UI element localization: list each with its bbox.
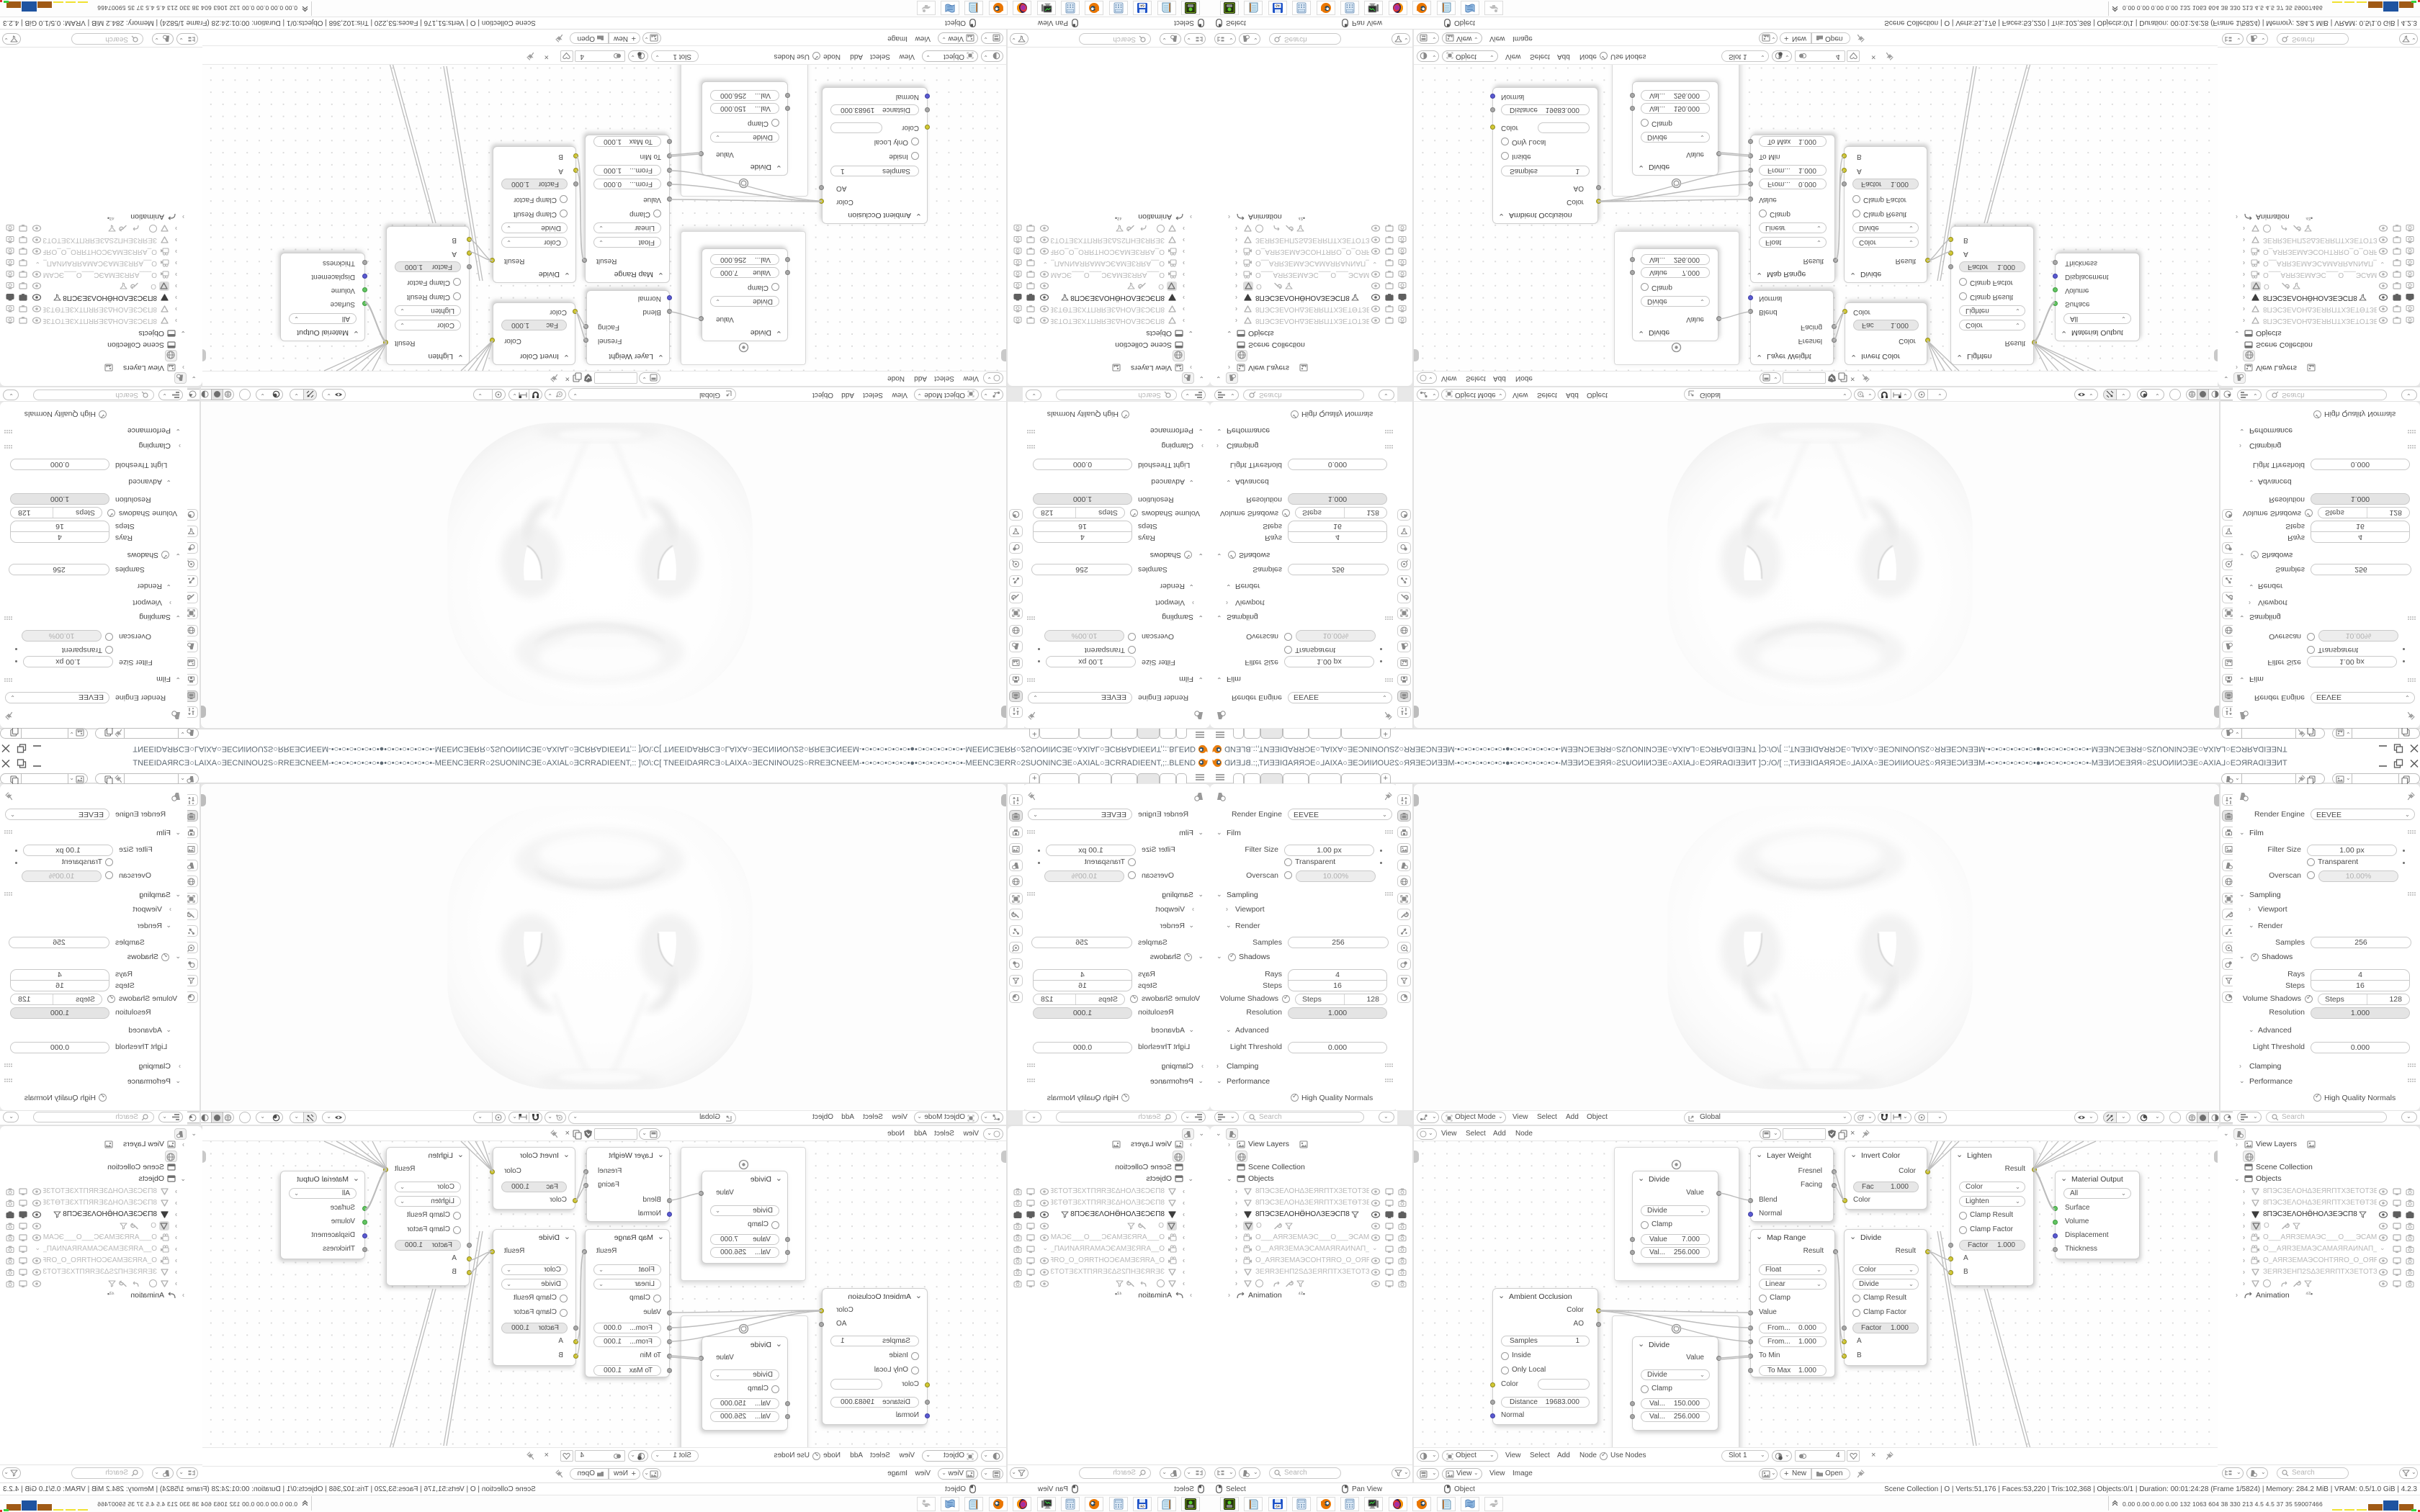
svg-text:64: 64 (1276, 3, 1280, 7)
svg-text:64: 64 (1140, 1505, 1144, 1509)
svg-text:64: 64 (1276, 1505, 1280, 1509)
svg-text:64: 64 (1140, 3, 1144, 7)
